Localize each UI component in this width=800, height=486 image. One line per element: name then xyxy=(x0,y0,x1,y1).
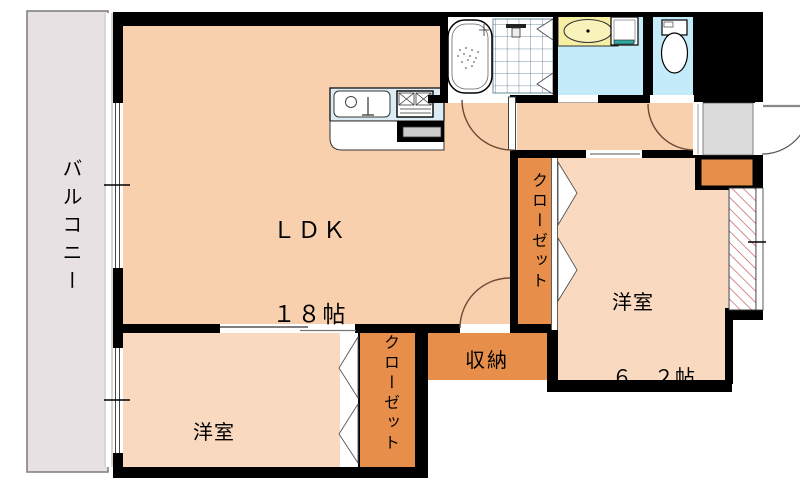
balcony-label: バルコニー xyxy=(57,158,85,328)
floorplan: バルコニー ＬＤＫ １８帖 洋室 ６．２帖 洋室 ５．３帖 収納 クローゼット … xyxy=(0,0,800,486)
toilet-doorway xyxy=(650,95,694,103)
ldk-size: １８帖 xyxy=(240,300,380,328)
bedroom-6-2-label: 洋室 ６．２帖 xyxy=(612,241,696,441)
kitchen-unit xyxy=(330,88,444,150)
pipe-shaft xyxy=(729,188,763,310)
bedroom-5-3-name: 洋室 xyxy=(193,421,277,446)
closet-right-label: クローゼット xyxy=(523,172,549,312)
bedroom-6-2-name: 洋室 xyxy=(612,291,696,316)
kitchen-handle xyxy=(403,127,441,137)
genkan-floor xyxy=(703,103,753,155)
closet-left-label: クローゼット xyxy=(375,334,401,470)
ldk-hall-doorway xyxy=(448,95,510,103)
ldk-floor-east xyxy=(440,103,510,324)
entrance-door-arc xyxy=(762,106,800,154)
ldk-label: ＬＤＫ １８帖 xyxy=(240,160,380,384)
bathroom-fixtures xyxy=(448,19,553,94)
bedroom-6-2-size: ６．２帖 xyxy=(612,366,696,391)
shoe-cabinet xyxy=(701,159,753,186)
entrance xyxy=(693,102,800,186)
front-doorway xyxy=(755,102,763,155)
kitchen-sink-icon xyxy=(334,91,390,117)
ldk-name: ＬＤＫ xyxy=(240,216,380,244)
washroom-doorway xyxy=(558,95,598,103)
pipe-shaft-hatch xyxy=(729,188,756,310)
ldk-hall-door-leaf xyxy=(509,97,516,150)
shower-icon xyxy=(506,24,526,28)
bedroom-5-3-label: 洋室 ５．３帖 xyxy=(193,371,277,486)
storage-doorway xyxy=(460,324,510,333)
storage-label: 収納 xyxy=(447,344,527,373)
corner-block xyxy=(693,12,763,103)
hallway-floor xyxy=(517,103,693,150)
